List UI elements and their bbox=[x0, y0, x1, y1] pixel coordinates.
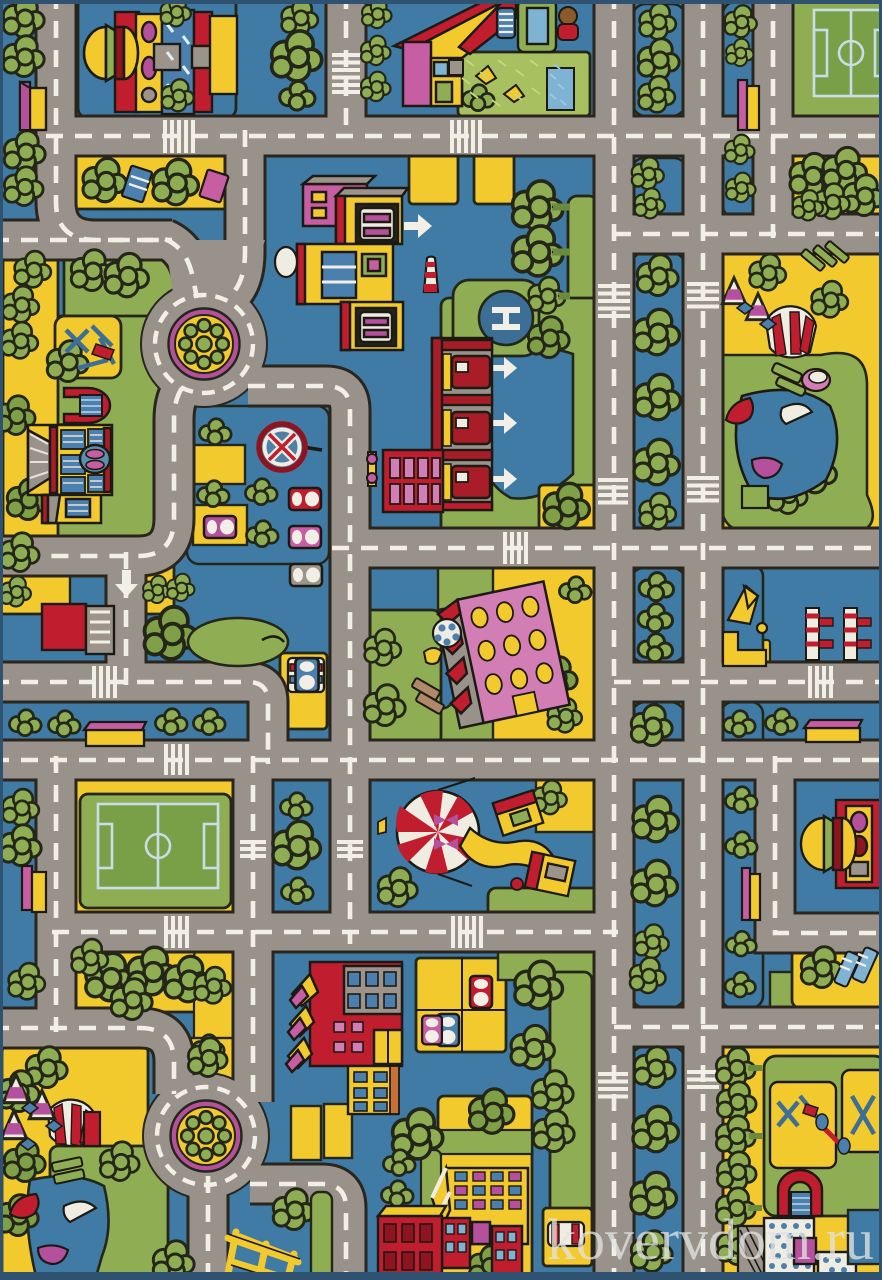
svg-text:kovervdom.ru: kovervdom.ru bbox=[547, 1207, 874, 1272]
